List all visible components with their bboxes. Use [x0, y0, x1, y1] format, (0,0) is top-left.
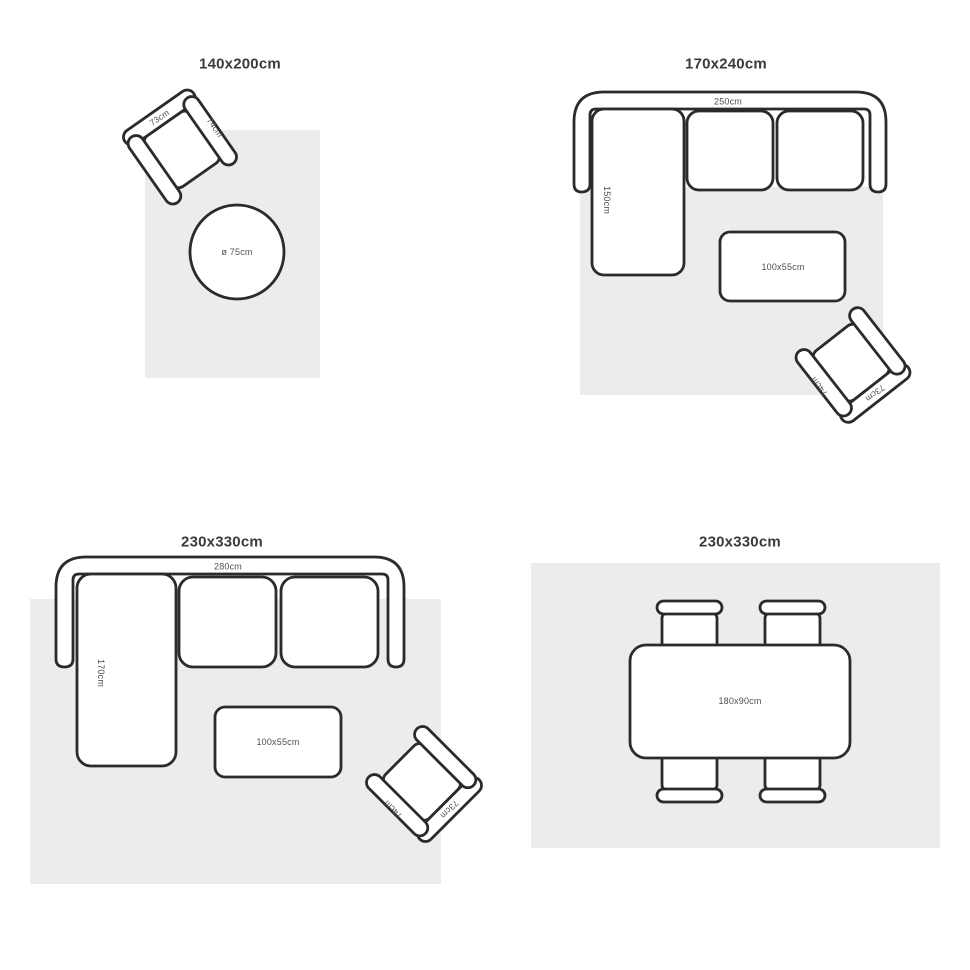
sofa-seat-cushion — [687, 111, 773, 190]
sofa-chaise-dimension: 170cm — [96, 659, 106, 687]
sofa-seat-cushion — [281, 577, 378, 667]
dining-chair-backrest — [760, 789, 825, 802]
dining-chair-backrest — [657, 601, 722, 614]
sofa-seat-cushion — [777, 111, 863, 190]
dining-chair-backrest — [657, 789, 722, 802]
sofa-seat-cushion — [179, 577, 276, 667]
scene-rug-170x240: 250cm 150cm 100x55cm 73cm 74cm — [485, 0, 970, 485]
coffee-table-dimension: 100x55cm — [256, 737, 299, 747]
scene-rug-230x330-living: 280cm 170cm 100x55cm 73cm 74cm — [0, 485, 485, 970]
sofa-width-dimension: 280cm — [214, 562, 242, 572]
sofa-chaise-dimension: 150cm — [602, 186, 612, 214]
coffee-table-dimension: 100x55cm — [761, 262, 804, 272]
sofa-width-dimension: 250cm — [714, 97, 742, 107]
dining-chair-backrest — [760, 601, 825, 614]
dining-table-dimension: 180x90cm — [718, 696, 761, 706]
scene-rug-230x330-dining: 180x90cm — [485, 485, 970, 970]
scene-rug-140x200: 73cm 74cm ø 75cm — [0, 0, 485, 485]
round-table-dimension: ø 75cm — [221, 247, 252, 257]
sofa-chaise — [77, 574, 176, 766]
